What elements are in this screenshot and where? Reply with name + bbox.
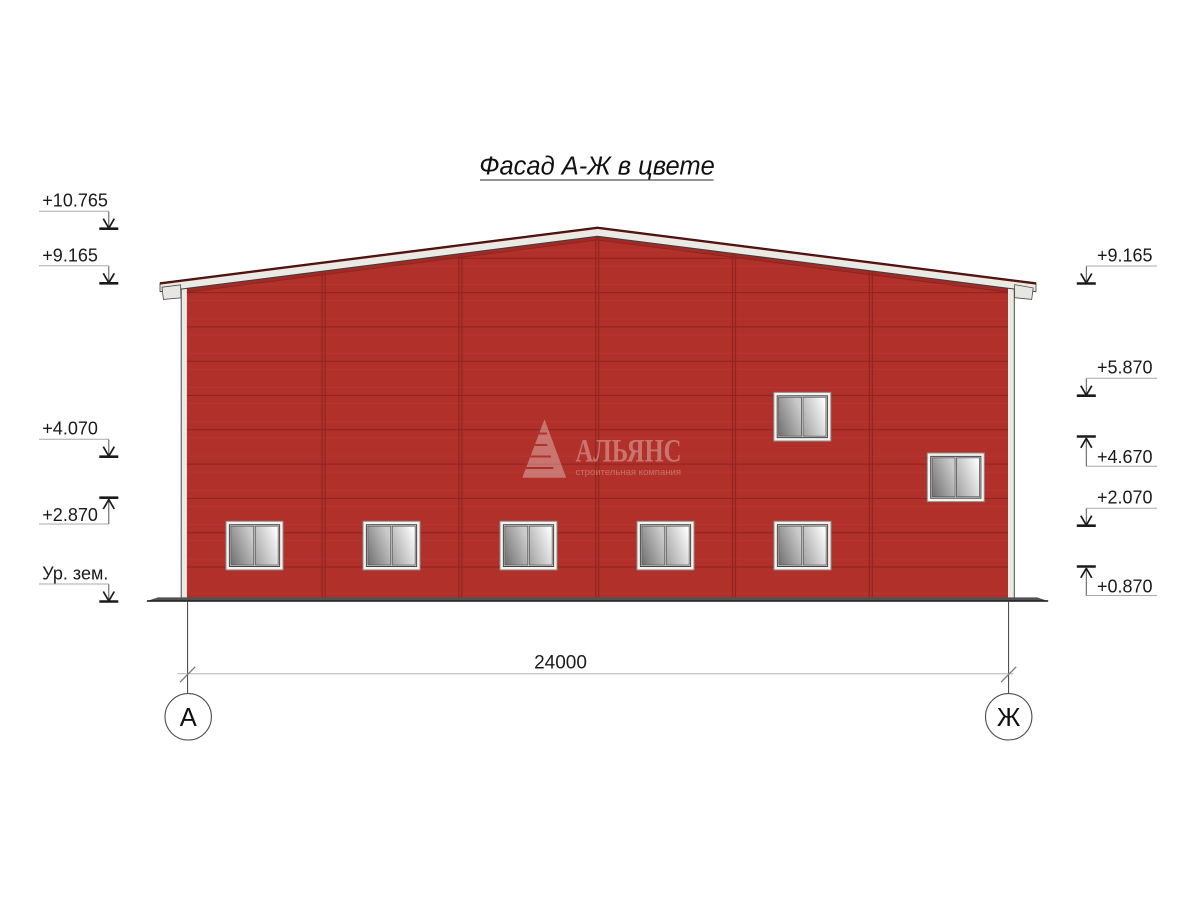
svg-text:АЛЬЯНС: АЛЬЯНС bbox=[576, 434, 682, 470]
svg-text:А: А bbox=[180, 704, 197, 732]
svg-text:Ур. зем.: Ур. зем. bbox=[42, 564, 108, 584]
svg-text:строительная компания: строительная компания bbox=[576, 467, 682, 478]
svg-text:+5.870: +5.870 bbox=[1097, 358, 1153, 378]
svg-text:+2.870: +2.870 bbox=[42, 505, 98, 525]
svg-text:Ж: Ж bbox=[997, 704, 1021, 732]
svg-text:+4.070: +4.070 bbox=[42, 419, 98, 439]
svg-text:+4.670: +4.670 bbox=[1097, 447, 1153, 467]
svg-text:+0.870: +0.870 bbox=[1097, 577, 1153, 597]
svg-text:24000: 24000 bbox=[534, 653, 587, 674]
svg-text:+9.165: +9.165 bbox=[42, 245, 98, 265]
svg-text:+10.765: +10.765 bbox=[42, 191, 108, 211]
svg-text:+9.165: +9.165 bbox=[1097, 246, 1153, 266]
svg-text:+2.070: +2.070 bbox=[1097, 488, 1153, 508]
svg-text:Фасад А-Ж в цвете: Фасад А-Ж в цвете bbox=[479, 152, 715, 180]
